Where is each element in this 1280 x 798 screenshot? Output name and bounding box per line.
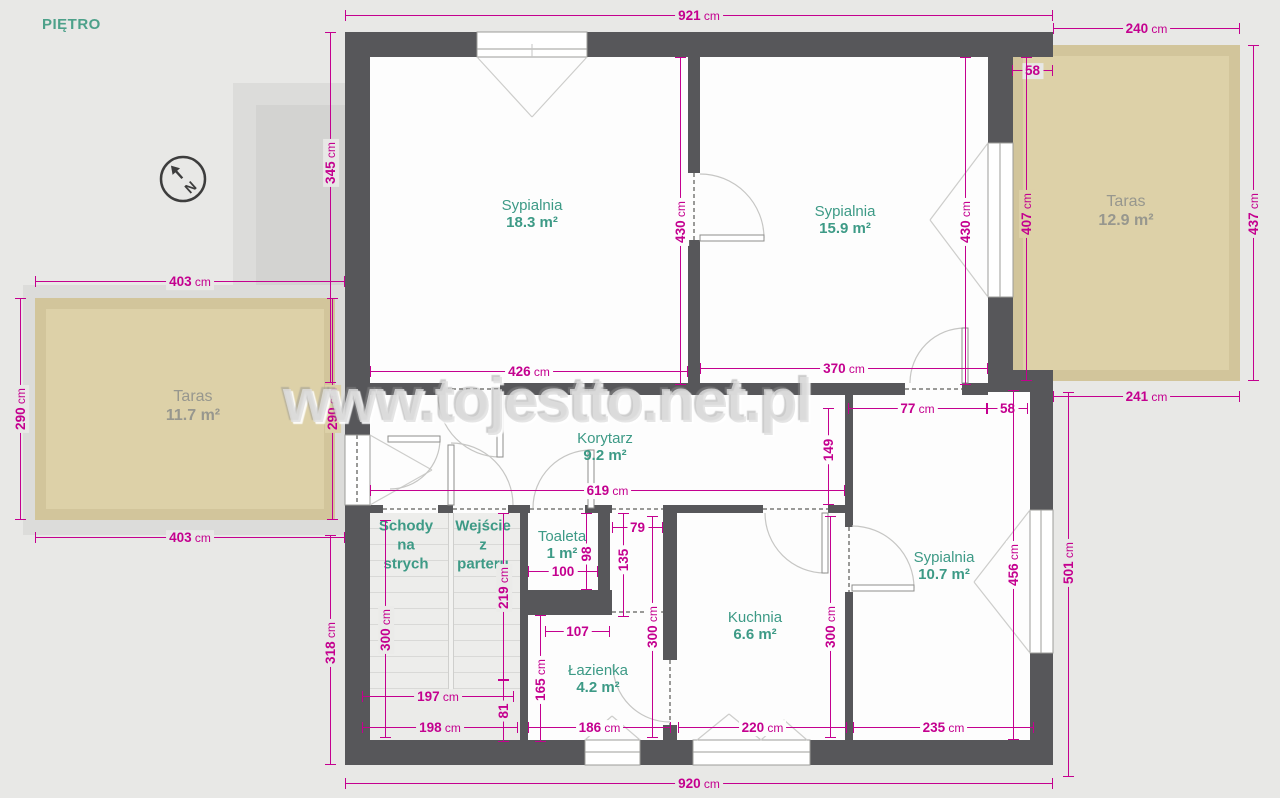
room-name: Sypialnia: [914, 549, 975, 566]
room-label-sypialnia-2: Sypialnia15.9 m²: [815, 203, 876, 237]
door-arc-bedroom2: [910, 328, 965, 383]
dimension-label: 318 cm: [323, 619, 339, 667]
dimension-920-cm: 920 cm: [345, 783, 1053, 784]
room-name: Toaleta: [538, 528, 586, 545]
dimension-label: 197 cm: [414, 689, 462, 705]
dimension-label: 370 cm: [820, 361, 868, 377]
dimension-label: 98: [579, 543, 595, 564]
dimension-100: 100: [528, 571, 598, 572]
dimension-label: 165 cm: [533, 656, 549, 704]
dimension-label: 300 cm: [823, 603, 839, 651]
room-area: 11.7 m²: [166, 406, 220, 425]
room-area: 6.6 m²: [728, 626, 782, 643]
dimension-label: 81: [496, 700, 512, 721]
dimension-label: 345 cm: [323, 139, 339, 187]
dimension-437-cm: 437 cm: [1253, 45, 1254, 381]
dimension-label: 219 cm: [496, 564, 512, 612]
dimension-label: 403 cm: [166, 530, 214, 546]
dimension-456-cm: 456 cm: [1013, 390, 1014, 740]
dimension-403-cm: 403 cm: [35, 281, 345, 282]
door-arc-attic-stairs: [390, 439, 440, 489]
dimension-label: 300 cm: [645, 603, 661, 651]
room-label-sypialnia-3: Sypialnia10.7 m²: [914, 549, 975, 583]
dimension-219-cm: 219 cm: [503, 513, 504, 680]
room-name: Łazienka: [568, 662, 628, 679]
zone-label-schody-na-strych: Schody na strych: [379, 517, 433, 574]
dimension-label: 300 cm: [378, 606, 394, 654]
dimension-619-cm: 619 cm: [370, 490, 845, 491]
dimension-235-cm: 235 cm: [853, 727, 1034, 728]
dimension-135: 135: [623, 513, 624, 617]
room-label-lazienka: Łazienka4.2 m²: [568, 662, 628, 696]
dimension-79: 79: [612, 527, 663, 528]
dimension-107: 107: [545, 631, 610, 632]
dimension-label: 456 cm: [1006, 541, 1022, 589]
dimension-label: 240 cm: [1123, 21, 1171, 37]
door-arc-bedroom3: [852, 526, 914, 588]
dimension-403-cm: 403 cm: [35, 537, 345, 538]
dimension-345-cm: 345 cm: [330, 32, 331, 383]
room-label-taras-right: Taras12.9 m²: [1098, 192, 1153, 230]
dimension-149: 149: [828, 408, 829, 505]
dimension-300-cm: 300 cm: [385, 520, 386, 738]
dimension-220-cm: 220 cm: [678, 727, 847, 728]
door-arc-kitchen: [765, 513, 825, 573]
dimension-240-cm: 240 cm: [1053, 28, 1240, 29]
north-compass-icon: N: [157, 153, 209, 205]
room-area: 12.9 m²: [1098, 211, 1153, 230]
dimension-197-cm: 197 cm: [362, 696, 514, 697]
dimension-98: 98: [586, 513, 587, 590]
dimension-label: 77 cm: [897, 401, 937, 417]
room-name: Sypialnia: [502, 197, 563, 214]
dimension-430-cm: 430 cm: [965, 57, 966, 385]
room-name: Taras: [1098, 192, 1153, 211]
dimension-241-cm: 241 cm: [1053, 396, 1240, 397]
dimension-label: 220 cm: [739, 720, 787, 736]
dimension-label: 149: [821, 436, 837, 465]
dimension-label: 198 cm: [416, 720, 464, 736]
dimension-label: 235 cm: [920, 720, 968, 736]
door-swing-arcs: [390, 174, 965, 722]
dimension-290-cm: 290 cm: [20, 298, 21, 520]
dimension-label: 100: [549, 564, 578, 580]
watermark: www.tojestto.net.pl: [283, 366, 811, 437]
dimension-300-cm: 300 cm: [652, 516, 653, 738]
dimension-label: 290 cm: [13, 385, 29, 433]
dimension-label: 437 cm: [1246, 190, 1262, 238]
dimension-label: 501 cm: [1061, 539, 1077, 587]
dimension-430-cm: 430 cm: [680, 57, 681, 385]
room-label-kuchnia: Kuchnia6.6 m²: [728, 609, 782, 643]
dimension-label: 107: [563, 624, 592, 640]
room-name: Kuchnia: [728, 609, 782, 626]
room-name: Sypialnia: [815, 203, 876, 220]
room-area: 10.7 m²: [914, 566, 975, 583]
plan-title: PIĘTRO: [42, 16, 101, 33]
door-arc-entrance: [451, 443, 513, 505]
dimension-300-cm: 300 cm: [830, 516, 831, 738]
dimension-77-cm: 77 cm: [848, 408, 987, 409]
room-label-sypialnia-1: Sypialnia18.3 m²: [502, 197, 563, 231]
dimension-186-cm: 186 cm: [528, 727, 671, 728]
room-area: 15.9 m²: [815, 220, 876, 237]
dimension-label: 241 cm: [1123, 389, 1171, 405]
dimension-label: 407 cm: [1019, 190, 1035, 238]
dimension-label: 920 cm: [675, 776, 723, 792]
dimension-label: 619 cm: [584, 483, 632, 499]
dimension-label: 186 cm: [576, 720, 624, 736]
dimension-label: 430 cm: [958, 198, 974, 246]
room-name: Taras: [166, 387, 220, 406]
dimension-501-cm: 501 cm: [1068, 392, 1069, 777]
dimension-label: 58: [997, 401, 1018, 417]
dimension-318-cm: 318 cm: [330, 535, 331, 765]
dimension-label: 135: [616, 546, 632, 575]
floor-plan: PIĘTRO N Sypialnia18.3 m²Sypialnia15.9 m…: [0, 0, 1280, 798]
dimension-921-cm: 921 cm: [345, 15, 1053, 16]
room-area: 9.2 m²: [577, 447, 633, 464]
room-label-taras-left: Taras11.7 m²: [166, 387, 220, 425]
dimension-81: 81: [503, 680, 504, 742]
dimension-58: 58: [987, 408, 1028, 409]
room-area: 18.3 m²: [502, 214, 563, 231]
room-area: 4.2 m²: [568, 679, 628, 696]
dimension-165-cm: 165 cm: [540, 615, 541, 742]
door-arc-between-bedrooms: [700, 174, 764, 238]
dimension-58: 58: [1012, 70, 1053, 71]
dimension-label: 403 cm: [166, 274, 214, 290]
dimension-label: 430 cm: [673, 198, 689, 246]
dimension-407-cm: 407 cm: [1026, 57, 1027, 381]
dimension-label: 921 cm: [675, 8, 723, 24]
dimension-label: 79: [627, 520, 648, 536]
dimension-198-cm: 198 cm: [362, 727, 518, 728]
compass-n: N: [181, 178, 199, 197]
